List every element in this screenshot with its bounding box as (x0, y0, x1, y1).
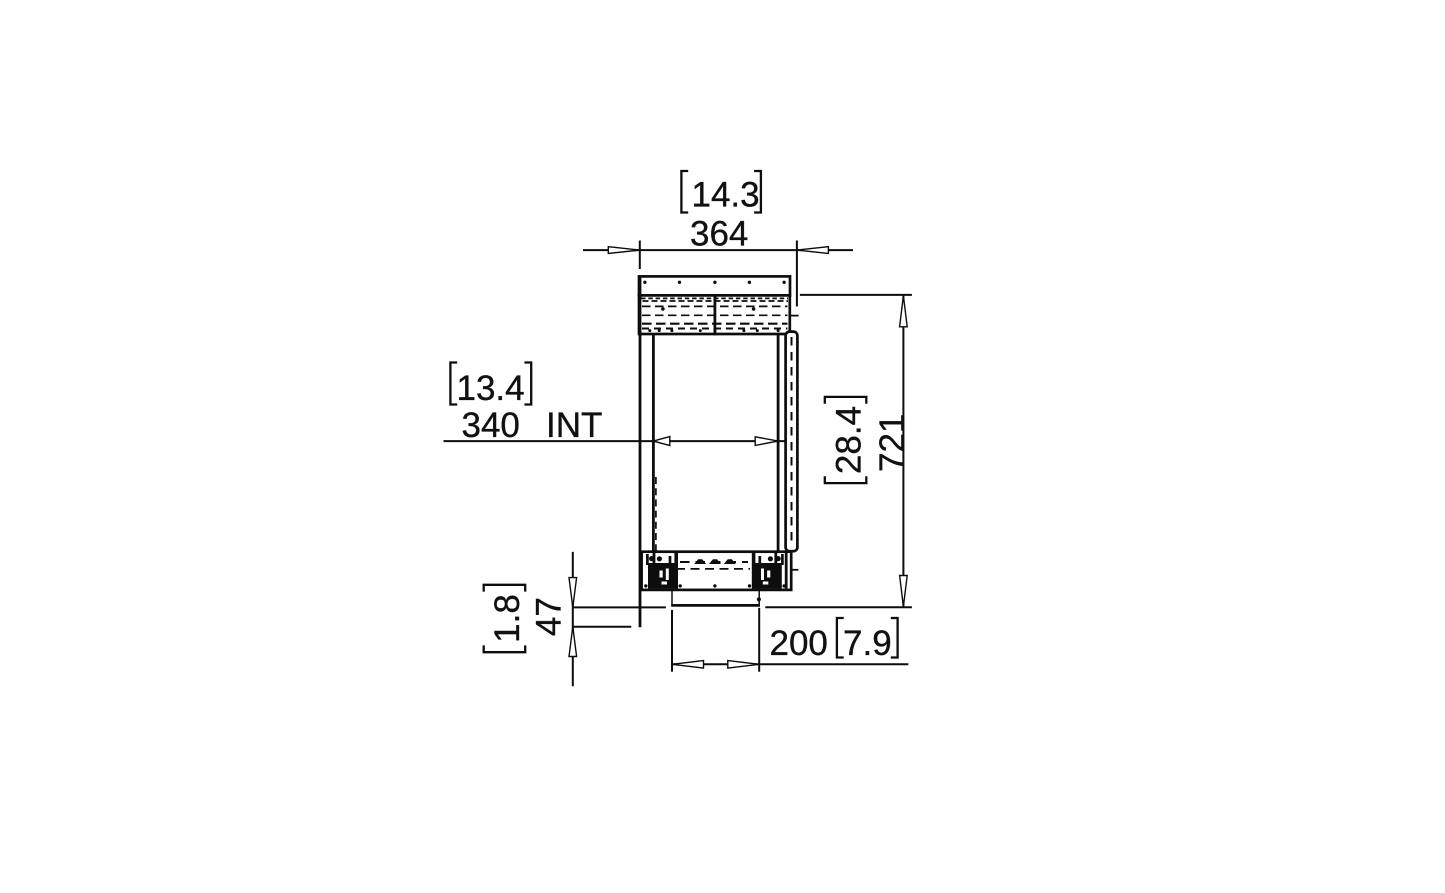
svg-text:364: 364 (690, 214, 748, 253)
svg-text:200: 200 (770, 624, 828, 663)
svg-text:340: 340 (462, 406, 520, 445)
svg-text:INT: INT (546, 406, 602, 445)
svg-text:47: 47 (530, 597, 569, 636)
svg-text:7.9: 7.9 (843, 624, 892, 663)
svg-text:721: 721 (873, 414, 912, 472)
svg-text:14.3: 14.3 (692, 176, 760, 215)
svg-text:1.8: 1.8 (488, 594, 527, 643)
svg-text:28.4: 28.4 (829, 406, 868, 474)
svg-text:13.4: 13.4 (457, 369, 525, 408)
